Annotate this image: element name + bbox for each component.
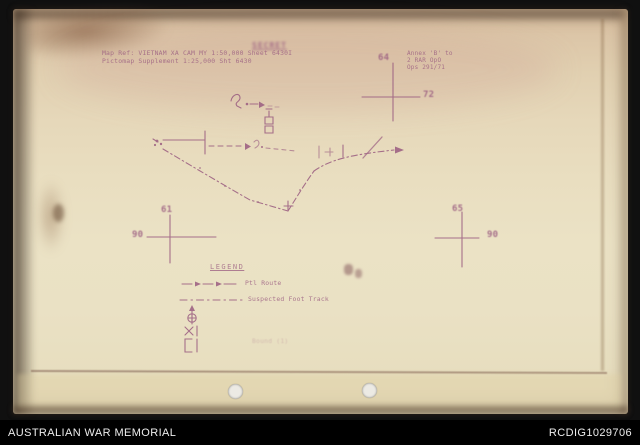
legend-label-foot-track: Suspected Foot Track [248,295,329,303]
stain-left-strip [13,9,35,414]
legend-note: Bound (1) [252,337,288,345]
footer-bar: AUSTRALIAN WAR MEMORIAL RCDIG1029706 [0,420,640,445]
map-reference-line1: Map Ref: VIETNAM XA CAM MY 1:50,000 Shee… [102,49,292,57]
document-page [13,9,628,414]
annex-line2: 2 RAR OpO [407,57,441,64]
institution-label: AUSTRALIAN WAR MEMORIAL [8,427,176,439]
stain-bottom-edge [13,406,628,414]
overlay-sheet-edge [31,370,607,374]
stain-mid-left [37,179,65,254]
stain-top-wash [58,27,558,112]
scan-viewer: SECRET Map Ref: VIETNAM XA CAM MY 1:50,0… [0,0,640,445]
grid-number-easting-65: 65 [452,204,463,214]
stain-right-edge [616,9,628,414]
punch-hole-left [228,384,243,399]
grid-number-northing-72: 72 [423,90,434,100]
annex-line3: Ops 291/71 [407,64,445,71]
item-id-label: RCDIG1029706 [549,427,632,439]
smudge-mark-a [344,264,353,275]
grid-number-northing-90-right: 90 [487,230,498,240]
smudge-mark-b [355,269,362,278]
punch-hole-right [362,383,377,398]
grid-number-easting-64: 64 [378,53,389,63]
grid-number-easting-61: 61 [161,205,172,215]
legend-title: LEGEND [210,263,244,271]
backing-sheet-band [17,374,621,410]
map-reference-line2: Pictomap Supplement 1:25,000 Sht 6430 [102,57,252,65]
grid-number-northing-90-left: 90 [132,230,143,240]
annex-line1: Annex 'B' to [407,50,453,57]
stain-left-spot [53,204,64,222]
crease-right-vertical [601,19,604,371]
stain-top-edge [15,9,623,19]
legend-label-ptl-route: Ptl Route [245,279,281,287]
